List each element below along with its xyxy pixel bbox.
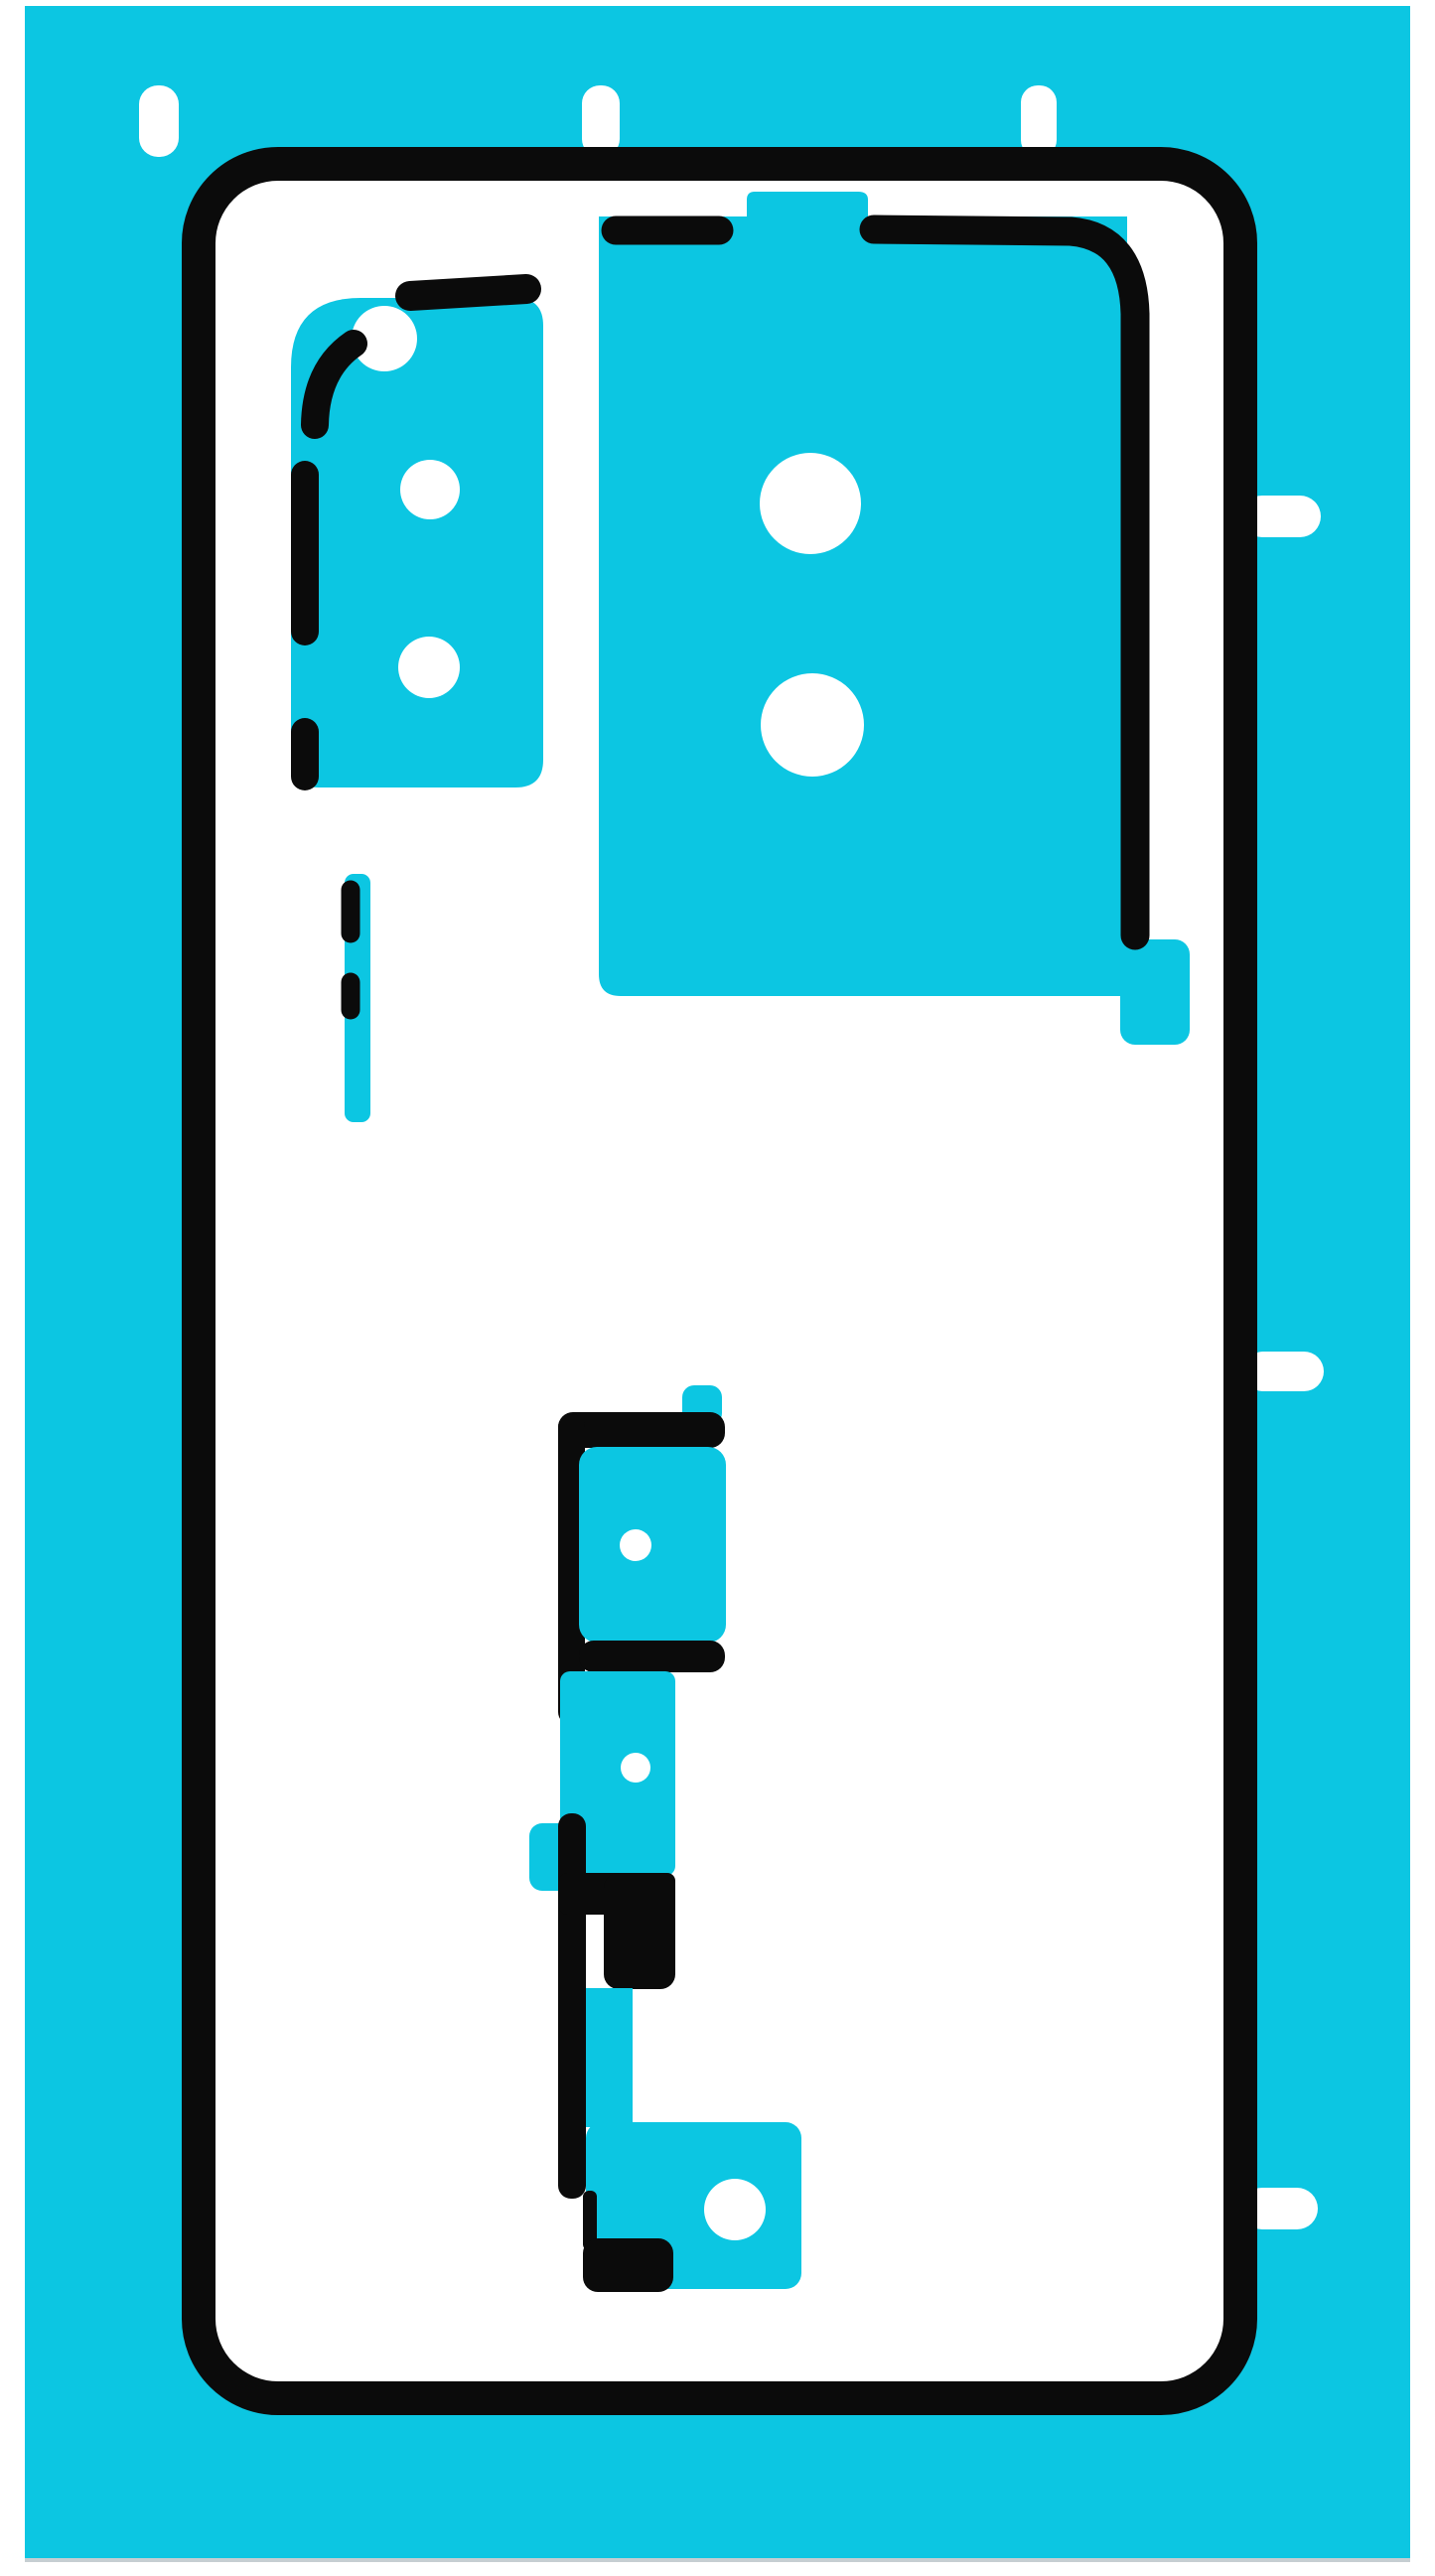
camera-left-outline-dash-top (410, 289, 526, 296)
camera-left-lens-hole-2 (398, 637, 460, 698)
top-registration-tab-2 (582, 85, 620, 157)
cluster-pad-2-hole (621, 1753, 650, 1783)
cluster-pad-1 (579, 1447, 726, 1643)
cluster-right-block (604, 1873, 675, 1989)
camera-main-lens-hole-1 (760, 453, 861, 554)
cluster-pad-3 (586, 1988, 633, 2127)
cluster-foot-hole (704, 2179, 766, 2240)
top-registration-tab-1 (139, 85, 179, 157)
camera-main-pad-step (1120, 939, 1190, 1045)
cluster-pad-1-hole (620, 1529, 651, 1561)
top-registration-tab-3 (1021, 85, 1057, 157)
cluster-bar-2 (579, 1641, 725, 1672)
camera-main-pad (599, 192, 1127, 996)
sheet-bottom-edge-shadow (25, 2558, 1410, 2562)
camera-main-lens-hole-2 (761, 673, 864, 777)
product-photo (0, 0, 1435, 2576)
cluster-foot-bar (583, 2238, 673, 2292)
adhesive-sheet-illustration (0, 0, 1435, 2576)
cluster-spine-lower (558, 1813, 586, 2199)
camera-left-lens-hole-1 (400, 460, 460, 519)
